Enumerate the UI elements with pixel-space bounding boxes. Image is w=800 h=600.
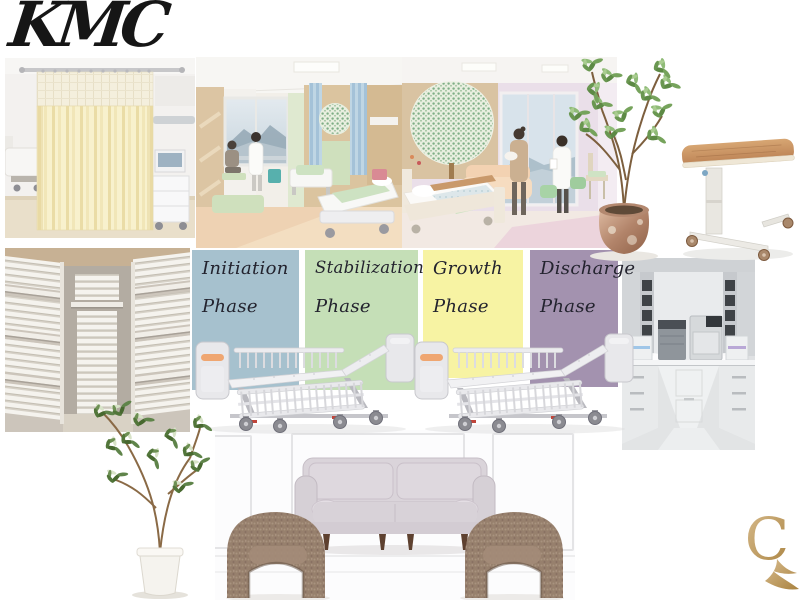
foliage [566,50,683,148]
sterilization-room-image [622,258,755,450]
branches [102,412,200,552]
terracotta-pot [599,203,649,254]
overbed-table [676,126,800,264]
brand-logo: KMC [6,0,167,56]
leaf-mural [320,104,350,134]
teal-stool [268,169,281,183]
ward-room-green-image [196,57,402,248]
height-lever [702,170,708,176]
center-linen-stacks [71,274,123,414]
curtain-image [5,58,195,238]
potted-tree [562,50,687,262]
phase-label-line2: Phase [315,296,371,317]
foliage [93,398,217,496]
tree-mural-panel [402,81,498,179]
phase-label-line2: Phase [540,296,596,317]
table-top [681,138,794,168]
phase-label-line1: Initiation [202,258,289,279]
privacy-curtain [37,69,153,230]
monitor-cart [153,150,189,230]
phase-label-line2: Phase [202,296,258,317]
green-ottoman [540,185,557,198]
waiting-lounge-image [215,430,575,600]
phase-label-line1: Stabilization [315,258,424,277]
white-pot [137,548,183,596]
hospital-bed-2 [413,328,635,436]
potted-plant [82,398,230,600]
mood-board: Initiation Phase Stabilization Phase Gro… [0,0,800,600]
phase-label-line1: Growth [433,258,503,279]
phase-label-line2: Phase [433,296,489,317]
monogram-letter: C [745,505,789,573]
gold-monogram: C [733,505,800,600]
